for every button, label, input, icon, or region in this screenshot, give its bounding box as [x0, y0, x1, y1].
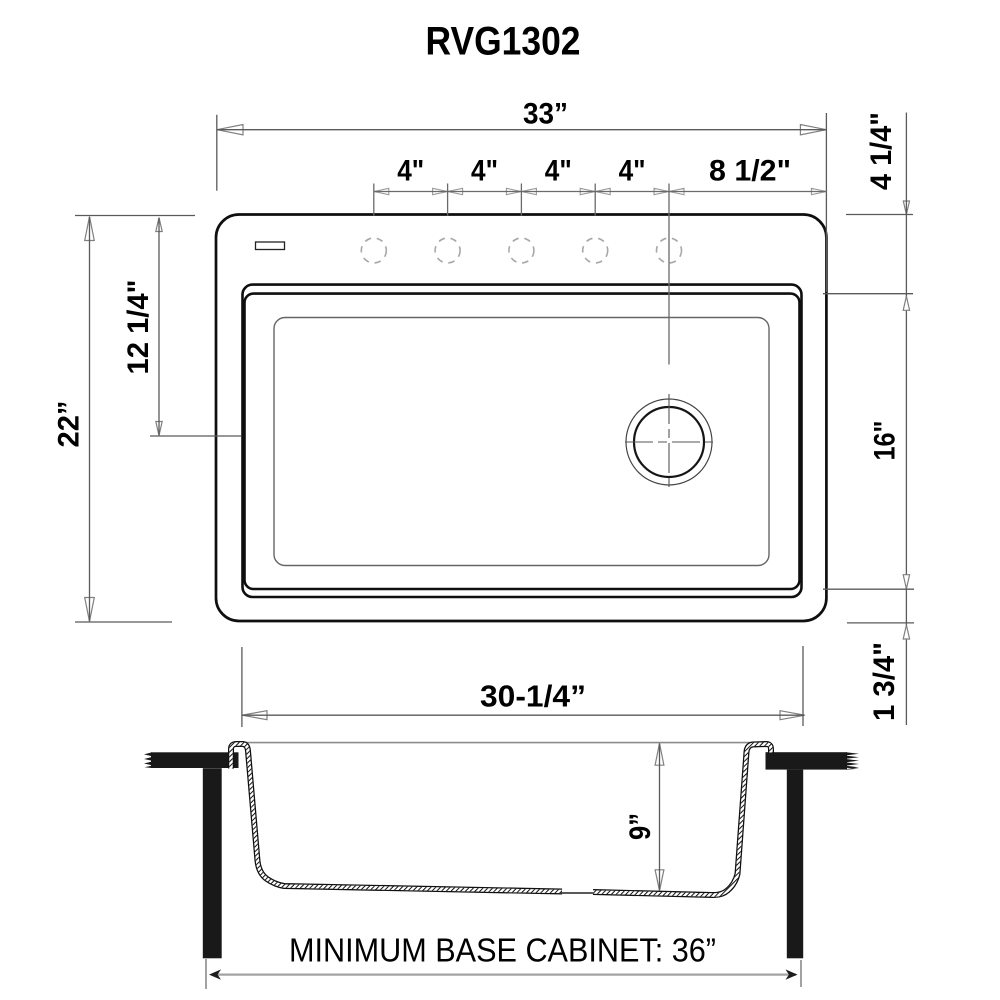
svg-text:1 3/4": 1 3/4" — [868, 642, 901, 721]
svg-text:4": 4" — [545, 155, 572, 188]
svg-text:RVG1302: RVG1302 — [426, 20, 581, 64]
svg-text:16": 16" — [869, 421, 902, 461]
svg-text:MINIMUM BASE CABINET: 36”: MINIMUM BASE CABINET: 36” — [289, 933, 716, 970]
svg-text:8 1/2": 8 1/2" — [709, 155, 791, 188]
svg-text:30-1/4”: 30-1/4” — [480, 679, 586, 714]
svg-text:4": 4" — [397, 155, 424, 188]
svg-text:12 1/4": 12 1/4" — [122, 280, 155, 375]
svg-text:22”: 22” — [53, 401, 86, 448]
svg-text:33”: 33” — [523, 98, 568, 131]
svg-text:4": 4" — [619, 155, 646, 188]
svg-text:9”: 9” — [624, 813, 657, 840]
svg-text:4 1/4": 4 1/4" — [865, 112, 898, 190]
svg-text:4": 4" — [471, 155, 498, 188]
